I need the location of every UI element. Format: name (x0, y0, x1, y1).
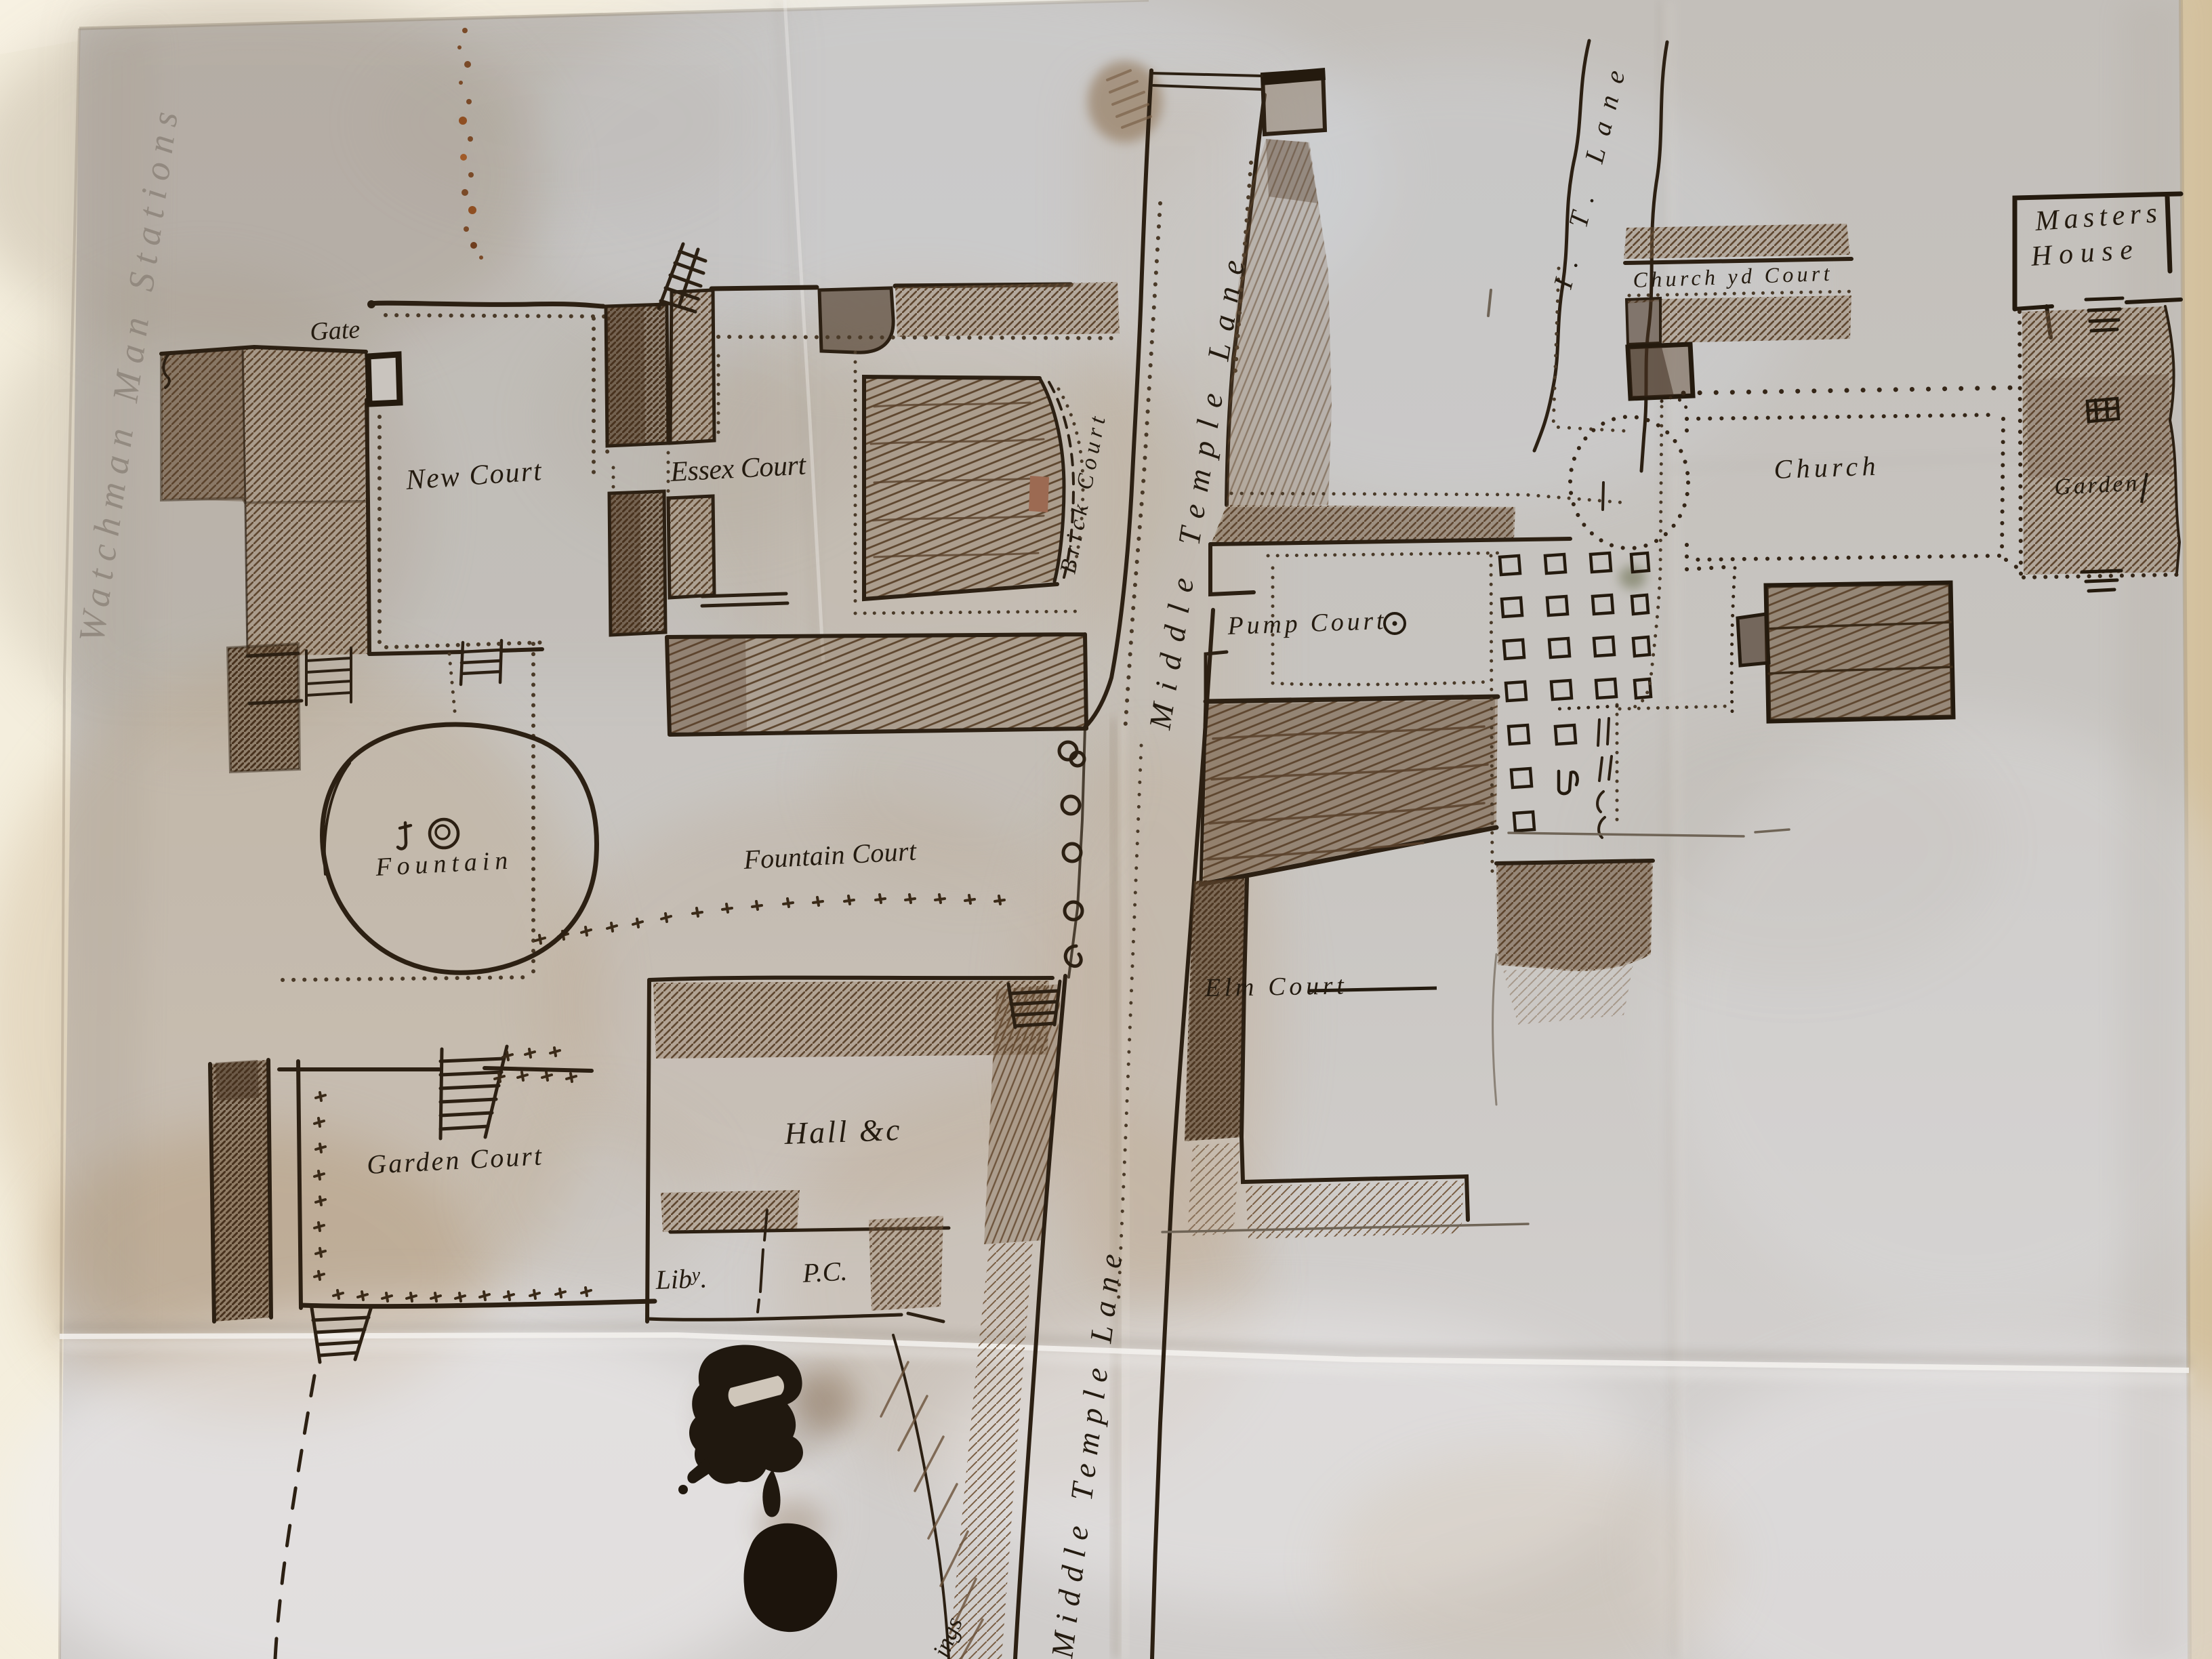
svg-text:Gate: Gate (309, 315, 361, 346)
svg-text:P.C.: P.C. (801, 1256, 848, 1288)
svg-text:Elm Court: Elm Court (1204, 971, 1345, 1002)
svg-text:Hall &c: Hall &c (783, 1112, 901, 1151)
